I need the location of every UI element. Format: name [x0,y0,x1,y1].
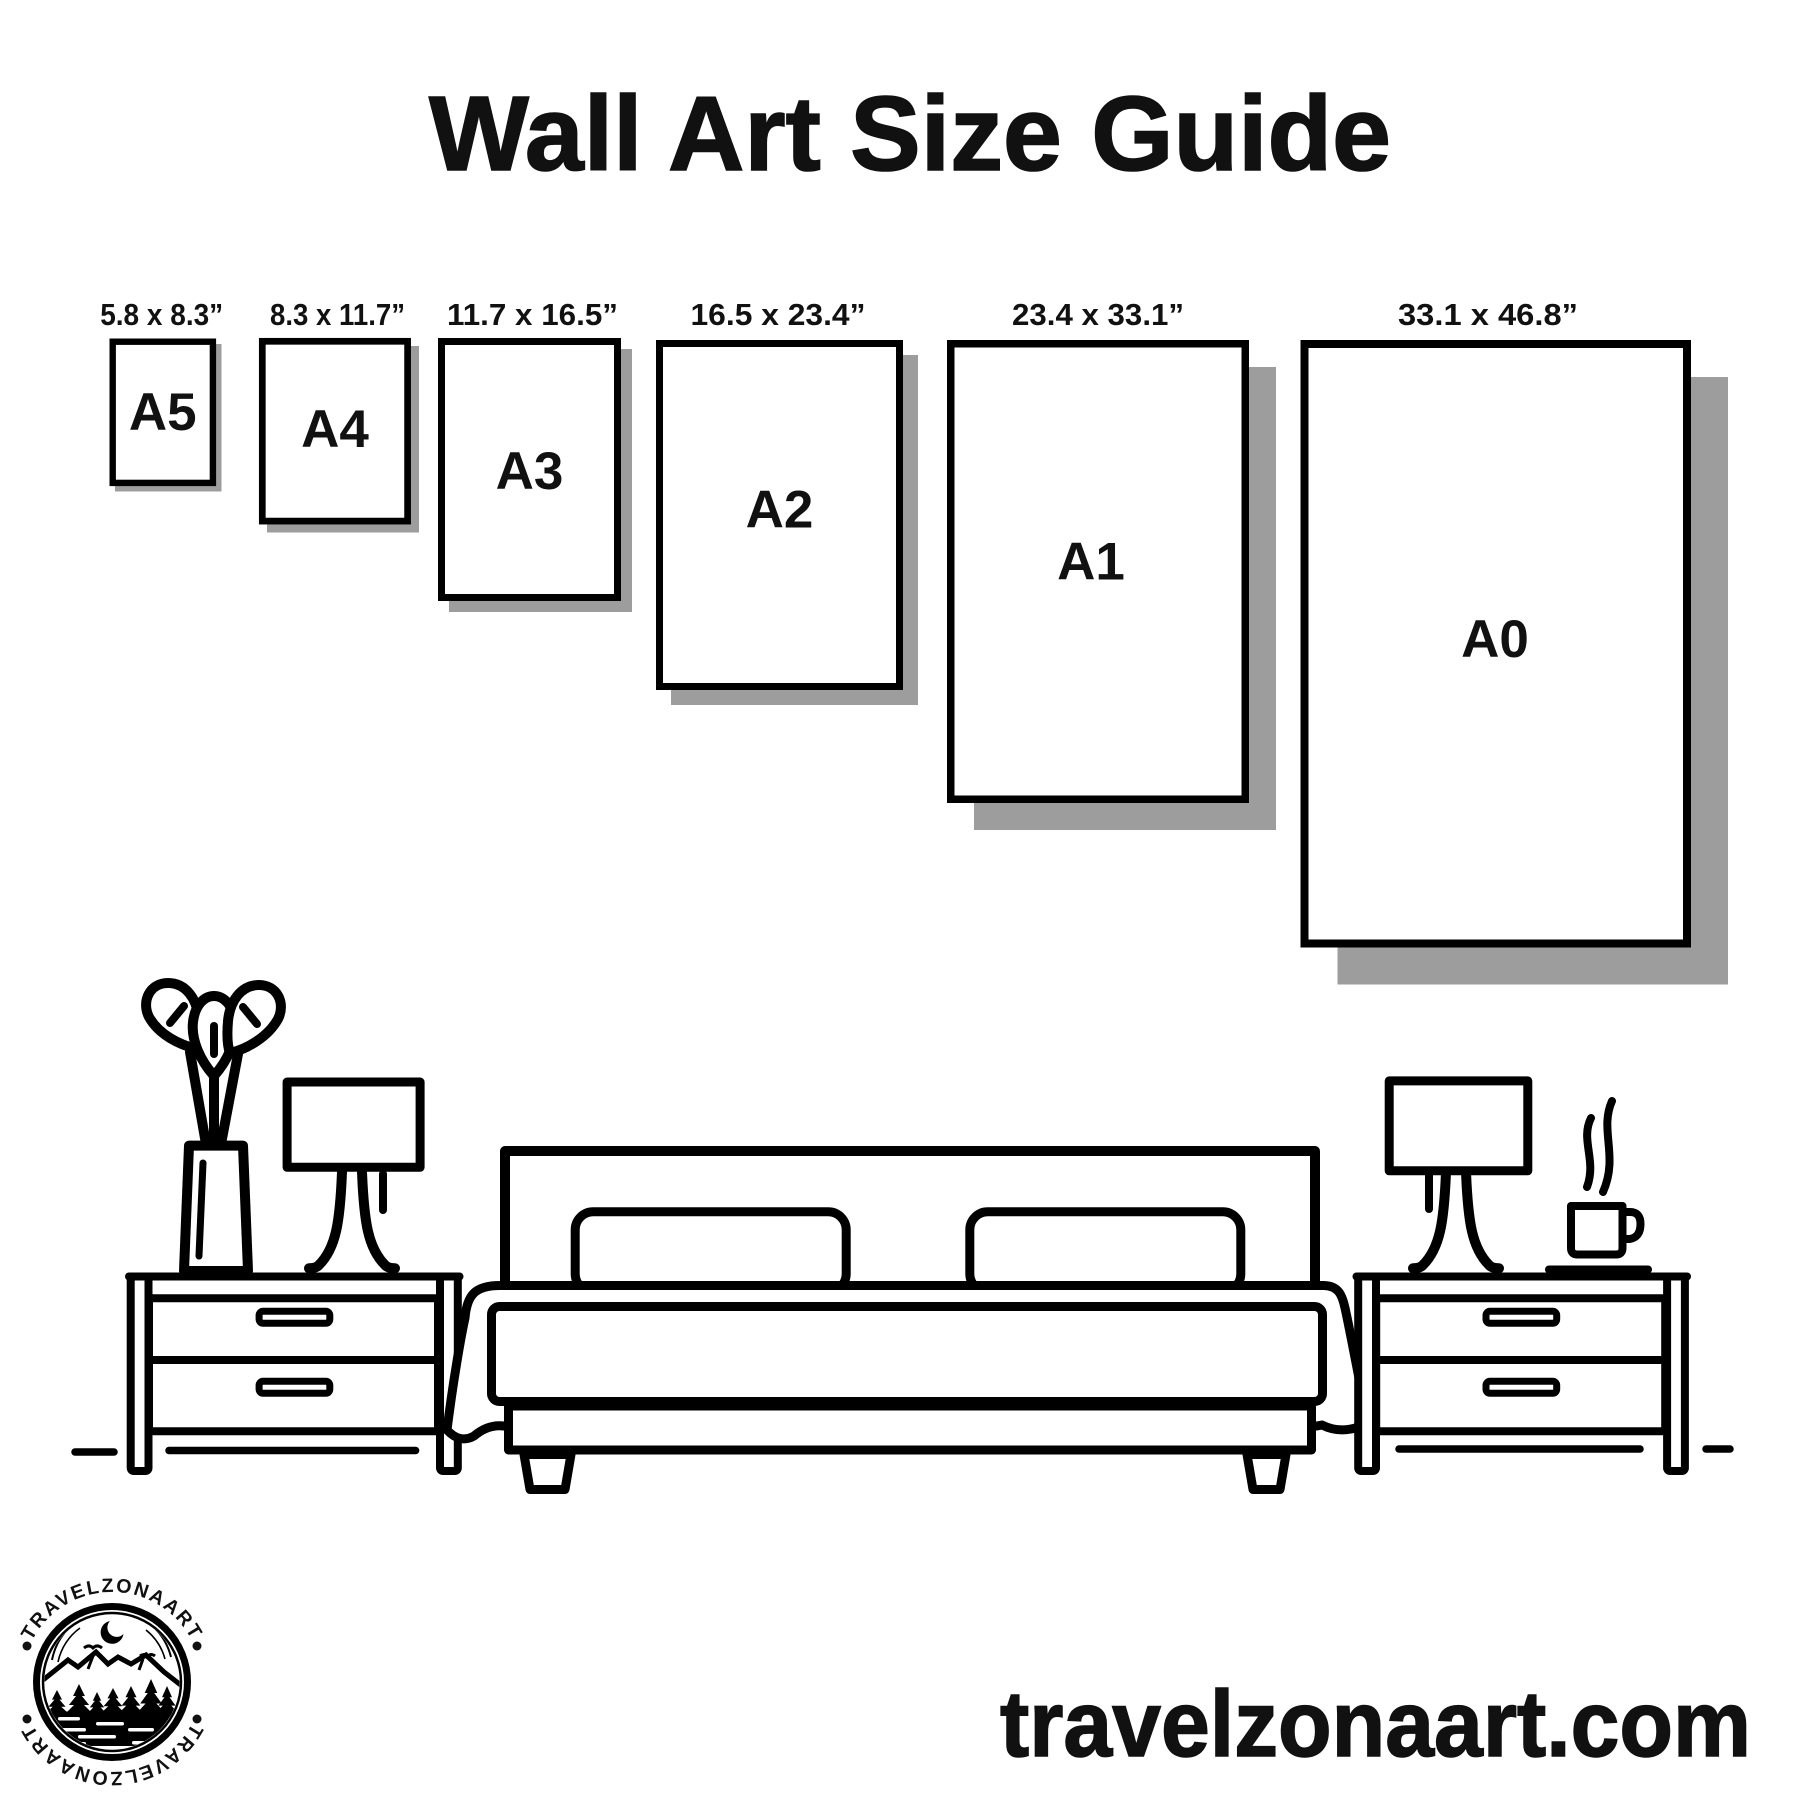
svg-text:5.8 x 8.3”: 5.8 x 8.3” [100,297,223,332]
svg-text:A0: A0 [1461,610,1529,669]
svg-text:A2: A2 [746,481,814,540]
svg-text:A3: A3 [496,442,564,501]
svg-text:A1: A1 [1057,533,1125,592]
svg-text:11.7 x 16.5”: 11.7 x 16.5” [447,297,618,332]
svg-text:Wall Art Size Guide: Wall Art Size Guide [429,75,1391,193]
svg-text:8.3 x 11.7”: 8.3 x 11.7” [270,297,405,332]
svg-text:travelzonaart.com: travelzonaart.com [1000,1671,1751,1776]
svg-text:23.4 x 33.1”: 23.4 x 33.1” [1012,297,1184,332]
svg-text:A5: A5 [129,383,197,442]
svg-text:16.5 x 23.4”: 16.5 x 23.4” [691,297,866,332]
svg-text:33.1 x 46.8”: 33.1 x 46.8” [1398,297,1578,332]
svg-text:A4: A4 [301,400,369,459]
